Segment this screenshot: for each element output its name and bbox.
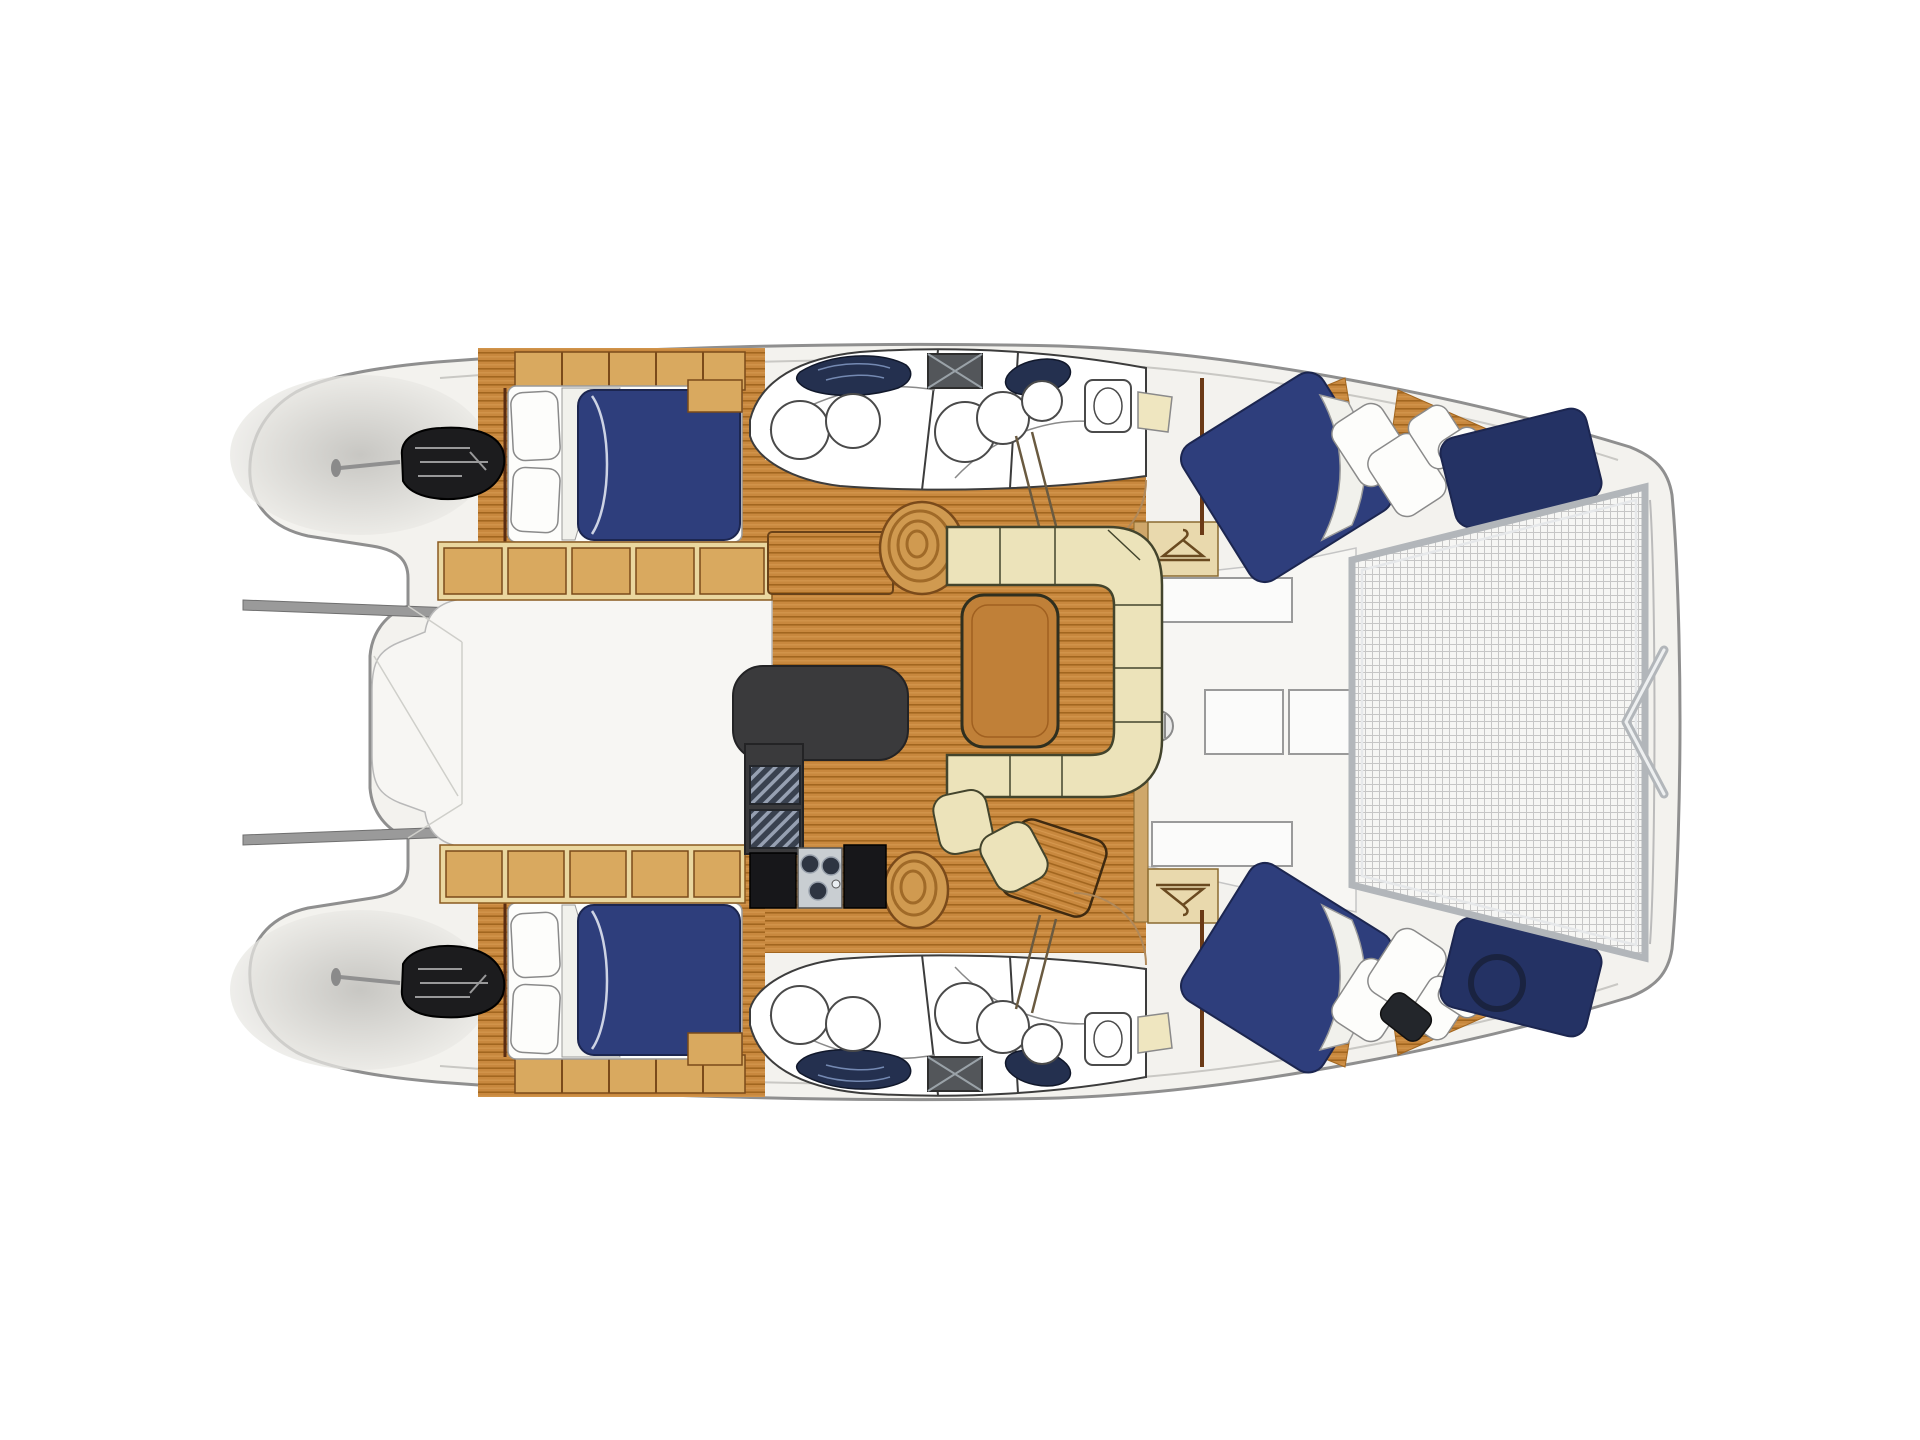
port-aft-cabin bbox=[478, 348, 765, 548]
cabinet-cell bbox=[572, 548, 630, 594]
rope-pouf-small bbox=[884, 852, 948, 928]
starboard-aft-cabin bbox=[478, 897, 765, 1097]
sideboard bbox=[768, 532, 893, 594]
sink-basin-icon bbox=[809, 882, 827, 900]
galley-sink bbox=[798, 848, 842, 908]
foredeck-locker bbox=[1152, 578, 1292, 622]
fridge-appliance bbox=[844, 845, 886, 908]
pillow bbox=[510, 391, 560, 461]
faucet-icon bbox=[832, 880, 840, 888]
aft-cabinet-row-starboard bbox=[440, 845, 745, 903]
foredeck-locker bbox=[1205, 690, 1283, 754]
door-leaf-wedge bbox=[1138, 392, 1172, 432]
cabinet-cell bbox=[636, 548, 694, 594]
foredeck-locker bbox=[1289, 690, 1358, 754]
oven-appliance bbox=[750, 853, 796, 908]
stove-icon bbox=[750, 766, 800, 804]
sink-basin-icon bbox=[822, 857, 840, 875]
trampoline-mesh bbox=[1352, 487, 1645, 958]
cabinet-cell bbox=[508, 851, 564, 897]
pillow bbox=[510, 467, 560, 533]
starboard-head bbox=[750, 955, 1172, 1096]
sink-basin-icon bbox=[801, 855, 819, 873]
toilet-bowl bbox=[1022, 381, 1062, 421]
corridor-dresser bbox=[688, 380, 742, 412]
cabinet-cell bbox=[446, 851, 502, 897]
salon-table bbox=[962, 595, 1058, 747]
cabinet-cell bbox=[632, 851, 688, 897]
engine-icon bbox=[402, 428, 504, 499]
toilet-icon bbox=[771, 401, 829, 459]
foredeck-locker bbox=[1152, 822, 1292, 866]
cabinet-cell bbox=[508, 548, 566, 594]
aft-cabinet-row-port bbox=[438, 542, 772, 600]
cockpit-deck bbox=[372, 598, 772, 848]
floorplan-page bbox=[0, 0, 1920, 1440]
stove-icon bbox=[750, 810, 800, 848]
catamaran-floorplan bbox=[0, 0, 1920, 1440]
cabinet-cell bbox=[694, 851, 740, 897]
toilet-icon bbox=[826, 394, 880, 448]
cabinet-cell bbox=[444, 548, 502, 594]
port-head bbox=[750, 349, 1172, 490]
cabinet-cell bbox=[570, 851, 626, 897]
cabinet-cell bbox=[700, 548, 764, 594]
wardrobe-starboard-forward bbox=[1148, 869, 1218, 923]
trampoline-net bbox=[1352, 487, 1664, 958]
propeller bbox=[331, 459, 341, 477]
